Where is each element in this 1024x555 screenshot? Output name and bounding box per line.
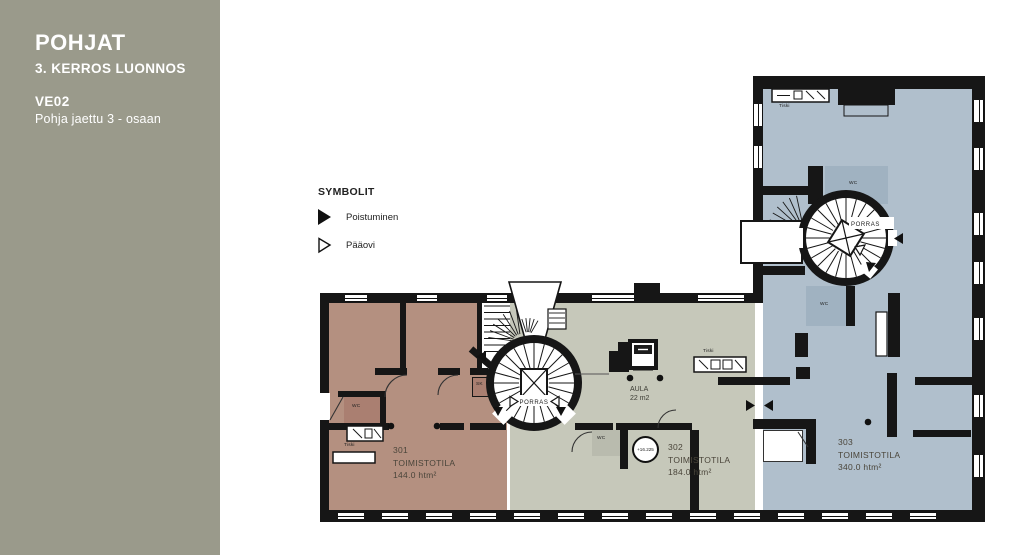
- wc-label: WC: [597, 436, 605, 441]
- tiski-label: Tiski: [779, 104, 790, 109]
- wc-label: WC: [820, 302, 828, 307]
- niche-303-top: [844, 105, 888, 116]
- counter-302: [694, 357, 746, 372]
- column-dot: [388, 423, 395, 430]
- entrance-vestibule: [741, 221, 802, 263]
- aula-name: AULA: [630, 385, 649, 394]
- counter-301: [333, 426, 383, 463]
- counter-303: [772, 89, 829, 102]
- stair-label-right: PORRAS: [851, 222, 880, 228]
- floor-plan: PORRAS PORRAS: [0, 0, 1024, 555]
- wc-label: WC: [849, 181, 857, 186]
- room-303-label: 303 TOIMISTOTILA 340.0 htm²: [838, 436, 900, 474]
- aula-label: AULA 22 m2: [630, 385, 649, 403]
- central-spiral-stair: PORRAS: [490, 339, 578, 427]
- right-spiral-stair: PORRAS: [794, 194, 897, 282]
- room-301-label: 301 TOIMISTOTILA 144.0 htm²: [393, 444, 455, 482]
- column-dot: [865, 419, 872, 426]
- tiski-label: Tiski: [703, 349, 714, 354]
- elevation-value: +16.225: [637, 447, 654, 452]
- room-area: 144.0 htm²: [393, 469, 455, 482]
- wc-label: WC: [352, 404, 360, 409]
- exit-icon: [764, 400, 773, 411]
- elevator-aula: [575, 339, 658, 374]
- sk-label: SK: [476, 382, 483, 387]
- aula-area: 22 m2: [630, 394, 649, 403]
- column-dot: [627, 375, 634, 382]
- room-type: TOIMISTOTILA: [393, 457, 455, 470]
- shaft-bump-303: [838, 76, 895, 105]
- room-area: 340.0 htm²: [838, 461, 900, 474]
- door-leaf: [798, 432, 808, 447]
- stair-label-central: PORRAS: [520, 400, 549, 406]
- room-302-label: 302 TOIMISTOTILA 184.0 htm²: [668, 441, 730, 479]
- column-dot: [657, 375, 664, 382]
- room-number: 303: [838, 436, 900, 449]
- door-leaf: [330, 397, 343, 420]
- floor-plan-sheet: POHJAT 3. KERROS LUONNOS VE02 Pohja jaet…: [0, 0, 1024, 555]
- door-arc: [385, 375, 407, 397]
- elevation-marker: +16.225: [632, 436, 659, 463]
- room-type: TOIMISTOTILA: [838, 449, 900, 462]
- room-number: 302: [668, 441, 730, 454]
- door-arc: [658, 410, 676, 428]
- exit-icon: [746, 400, 755, 411]
- room-area: 184.0 htm²: [668, 466, 730, 479]
- room-number: 301: [393, 444, 455, 457]
- tiski-label: Tiski: [344, 443, 355, 448]
- column-dot: [434, 423, 441, 430]
- room-type: TOIMISTOTILA: [668, 454, 730, 467]
- niche-303: [876, 312, 887, 356]
- door-arc: [572, 432, 592, 452]
- door-arc: [438, 375, 458, 395]
- stair-flight-box: [548, 309, 566, 329]
